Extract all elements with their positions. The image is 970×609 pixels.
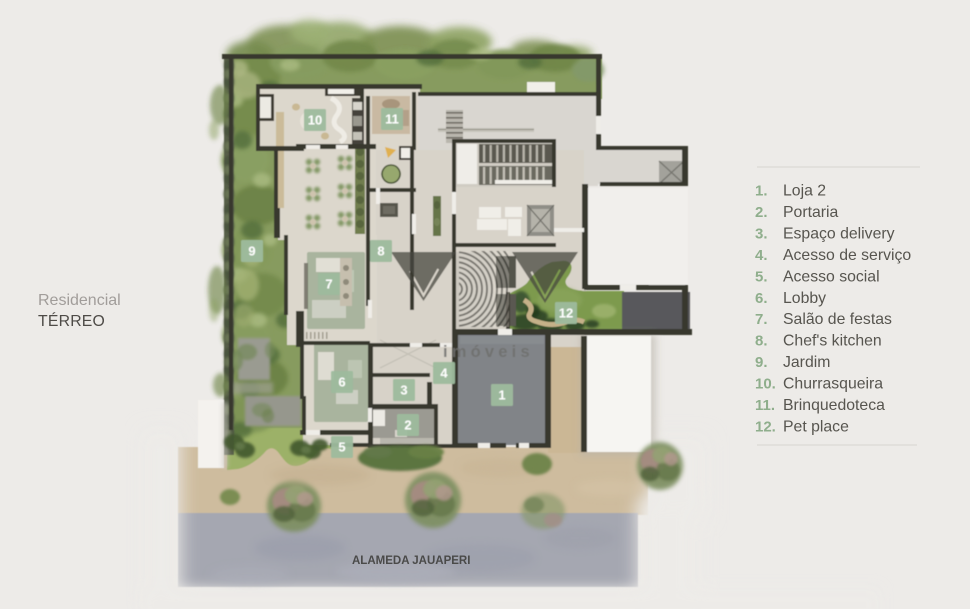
svg-text:2: 2 [404,418,411,433]
svg-text:5: 5 [338,440,345,455]
svg-text:Lobby: Lobby [783,290,826,307]
svg-text:6: 6 [338,375,345,390]
svg-text:Pet place: Pet place [783,418,849,435]
svg-text:12: 12 [559,306,573,321]
svg-text:9: 9 [248,244,255,259]
svg-text:Chef's kitchen: Chef's kitchen [783,333,882,350]
svg-text:Portaria: Portaria [783,204,839,221]
svg-text:5.: 5. [755,268,768,285]
svg-text:6.: 6. [755,290,768,307]
svg-text:12.: 12. [755,418,776,435]
svg-text:1.: 1. [755,183,768,200]
svg-text:10: 10 [308,113,322,128]
svg-text:Acesso social: Acesso social [783,268,880,285]
svg-text:8.: 8. [755,333,768,350]
svg-text:10.: 10. [755,376,776,393]
svg-text:4: 4 [440,366,448,381]
svg-text:3.: 3. [755,225,768,242]
svg-text:1: 1 [498,388,505,403]
svg-text:8: 8 [377,244,384,259]
svg-text:Brinquedoteca: Brinquedoteca [783,397,885,414]
svg-text:7: 7 [325,277,332,292]
svg-text:Salão de festas: Salão de festas [783,311,892,328]
svg-text:3: 3 [400,383,407,398]
svg-text:ALAMEDA JAUAPERI: ALAMEDA JAUAPERI [352,555,470,567]
svg-text:7.: 7. [755,311,768,328]
svg-text:Espaço delivery: Espaço delivery [783,225,895,242]
svg-text:Residencial: Residencial [38,292,121,309]
svg-text:9.: 9. [755,354,768,371]
svg-text:11: 11 [385,112,399,127]
svg-text:imóveis: imóveis [443,343,534,361]
svg-text:Acesso de serviço: Acesso de serviço [783,247,911,264]
svg-text:Churrasqueira: Churrasqueira [783,376,883,393]
svg-text:Jardim: Jardim [783,354,830,371]
svg-text:11.: 11. [755,397,775,414]
svg-text:2.: 2. [755,204,768,221]
svg-text:TÉRREO: TÉRREO [38,311,105,330]
svg-text:4.: 4. [755,247,768,264]
svg-text:Loja 2: Loja 2 [783,183,826,200]
